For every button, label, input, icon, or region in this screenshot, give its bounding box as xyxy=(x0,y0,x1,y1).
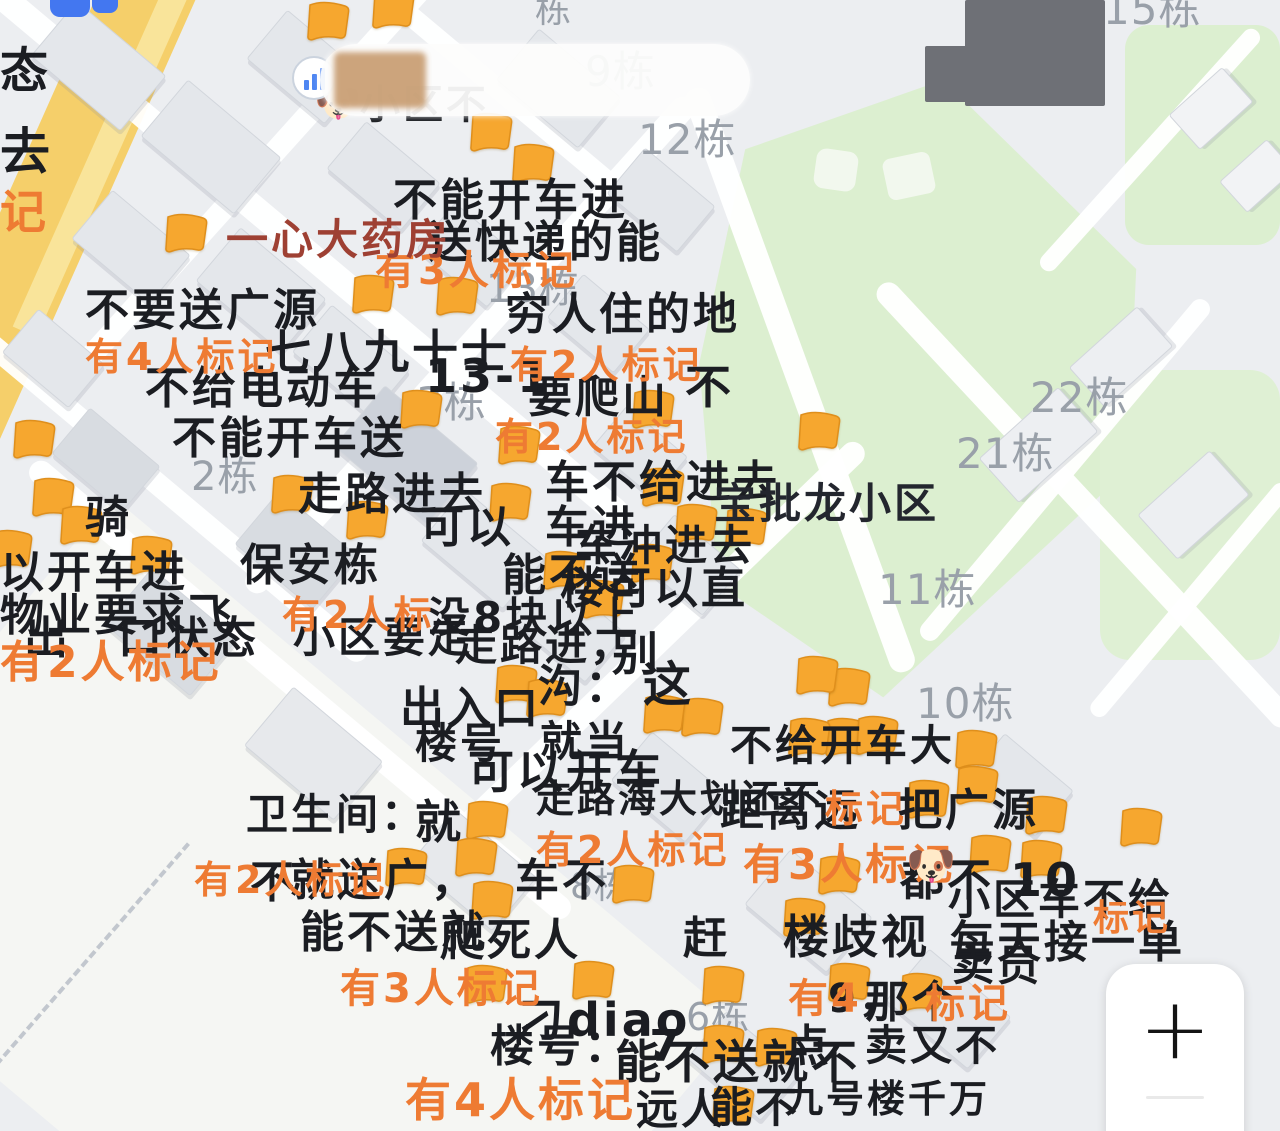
emoji-layer: 🐶🐶 xyxy=(0,0,1280,1131)
blurred-logo xyxy=(334,52,426,108)
map-zoom-control[interactable]: + xyxy=(1106,964,1244,1131)
zoom-in-button[interactable]: + xyxy=(1106,964,1244,1094)
dog-emoji: 🐶 xyxy=(906,846,956,886)
blurred-region xyxy=(320,44,750,116)
zoom-control-divider xyxy=(1146,1096,1204,1099)
map-view[interactable]: 栋9栋12栋15栋13栋3栋2栋22栋21栋11栋10栋6栋8栋 态去小区不不能… xyxy=(0,0,1280,1131)
